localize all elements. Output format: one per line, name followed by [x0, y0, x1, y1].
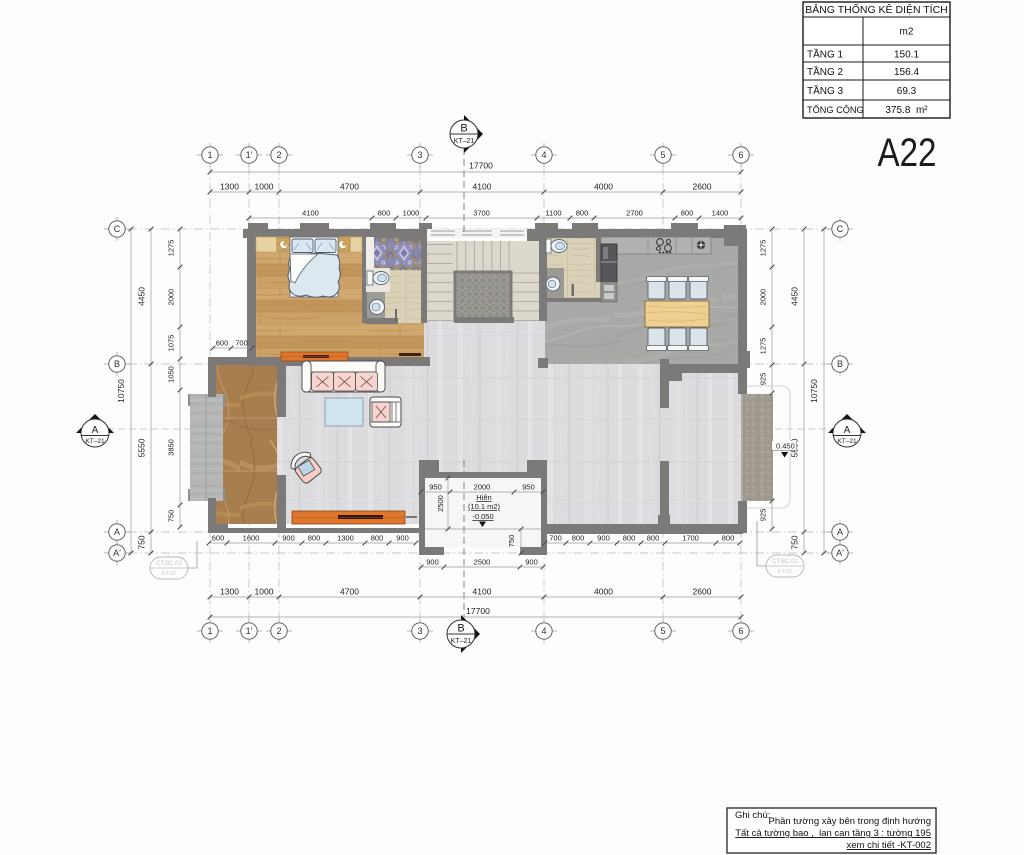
svg-text:1275: 1275: [167, 240, 176, 257]
svg-text:KT:02: KT:02: [778, 569, 792, 575]
svg-text:A: A: [844, 425, 851, 436]
svg-text:800: 800: [681, 209, 694, 218]
svg-text:17700: 17700: [466, 606, 490, 616]
svg-text:Ghi chú:: Ghi chú:: [735, 810, 770, 821]
svg-text:2500: 2500: [474, 558, 491, 567]
svg-text:1075: 1075: [167, 335, 176, 352]
svg-text:2000: 2000: [474, 483, 491, 492]
svg-text:TẦNG 3: TẦNG 3: [807, 84, 844, 97]
svg-text:700: 700: [549, 534, 562, 543]
svg-text:17700: 17700: [469, 161, 493, 171]
svg-text:2000: 2000: [759, 289, 768, 306]
svg-text:1600: 1600: [243, 534, 260, 543]
svg-text:1275: 1275: [759, 338, 768, 355]
svg-text:Hiên: Hiên: [476, 493, 491, 502]
svg-text:800: 800: [378, 209, 391, 218]
svg-text:1275: 1275: [759, 240, 768, 257]
svg-text:4100: 4100: [473, 182, 492, 192]
svg-text:4100: 4100: [302, 209, 319, 218]
svg-text:2000: 2000: [167, 289, 176, 306]
svg-text:1050: 1050: [167, 366, 176, 383]
svg-text:1: 1: [207, 626, 212, 636]
svg-text:1: 1: [207, 150, 212, 160]
svg-text:A: A: [114, 527, 120, 537]
svg-text:xem chi tiết -KT-002: xem chi tiết -KT-002: [847, 840, 931, 851]
svg-text:900: 900: [525, 558, 538, 567]
svg-text:4450: 4450: [790, 287, 800, 306]
svg-text:4700: 4700: [340, 182, 359, 192]
svg-text:600: 600: [212, 534, 225, 543]
svg-text:925: 925: [759, 373, 768, 386]
svg-text:750: 750: [507, 535, 516, 548]
svg-text:900: 900: [282, 534, 295, 543]
svg-text:0.450: 0.450: [776, 442, 795, 451]
svg-text:750: 750: [167, 510, 176, 523]
svg-text:B: B: [460, 123, 467, 135]
svg-text:5: 5: [660, 150, 665, 160]
svg-text:2700: 2700: [626, 209, 643, 218]
svg-text:A: A: [92, 425, 99, 436]
svg-text:10750: 10750: [116, 379, 126, 403]
svg-text:2600: 2600: [693, 182, 712, 192]
svg-text:B: B: [457, 623, 464, 635]
svg-text:2: 2: [276, 150, 281, 160]
svg-text:4: 4: [541, 626, 546, 636]
svg-text:KT:02: KT:02: [162, 571, 176, 577]
svg-text:Phần tường xây bên trong định: Phần tường xây bên trong định hướng: [768, 816, 931, 827]
svg-text:2: 2: [276, 626, 281, 636]
svg-text:KT–21: KT–21: [837, 438, 857, 445]
svg-text:4000: 4000: [594, 587, 613, 597]
svg-text:m2: m2: [900, 27, 914, 38]
svg-text:4100: 4100: [473, 587, 492, 597]
svg-text:900: 900: [396, 534, 409, 543]
svg-text:800: 800: [572, 534, 585, 543]
svg-text:6: 6: [738, 150, 743, 160]
svg-text:A: A: [837, 527, 843, 537]
svg-text:(10.1 m2): (10.1 m2): [468, 502, 501, 511]
svg-text:156.4: 156.4: [894, 67, 919, 78]
svg-text:4000: 4000: [594, 182, 613, 192]
svg-text:KT–21: KT–21: [454, 138, 475, 145]
svg-text:800: 800: [371, 534, 384, 543]
svg-text:2600: 2600: [693, 587, 712, 597]
svg-text:C: C: [837, 224, 844, 234]
svg-text:375.8 m²: 375.8 m²: [885, 105, 928, 116]
svg-text:1400: 1400: [712, 209, 729, 218]
svg-text:5550: 5550: [137, 438, 147, 457]
svg-text:2500: 2500: [436, 495, 445, 512]
svg-text:700: 700: [235, 339, 248, 348]
svg-text:-0.050: -0.050: [472, 512, 493, 521]
svg-text:800: 800: [308, 534, 321, 543]
svg-text:3850: 3850: [167, 439, 176, 456]
svg-text:1300: 1300: [220, 587, 239, 597]
svg-text:4700: 4700: [340, 587, 359, 597]
svg-text:800: 800: [722, 534, 735, 543]
svg-text:4450: 4450: [137, 287, 147, 306]
svg-text:1300: 1300: [220, 182, 239, 192]
svg-text:A': A': [836, 548, 844, 558]
svg-text:C: C: [114, 224, 121, 234]
svg-text:6: 6: [738, 626, 743, 636]
svg-text:925: 925: [759, 509, 768, 522]
svg-text:1000: 1000: [403, 209, 420, 218]
svg-text:1300: 1300: [337, 534, 354, 543]
svg-text:TỔNG CỘNG: TỔNG CỘNG: [807, 104, 864, 115]
svg-text:10750: 10750: [809, 379, 819, 403]
svg-text:3700: 3700: [473, 209, 490, 218]
svg-text:1': 1': [246, 626, 253, 636]
svg-text:A': A': [113, 548, 121, 558]
svg-text:Tất cả tường bao , lan can tầ: Tất cả tường bao , lan can tầng 3 : tườn…: [735, 828, 931, 839]
svg-text:KT–21: KT–21: [85, 438, 105, 445]
svg-text:1000: 1000: [255, 587, 274, 597]
svg-text:750: 750: [137, 535, 147, 549]
svg-text:1700: 1700: [682, 534, 699, 543]
svg-text:150.1: 150.1: [894, 50, 919, 61]
svg-text:CT.BC.01: CT.BC.01: [156, 561, 182, 567]
svg-text:5: 5: [660, 626, 665, 636]
svg-text:1': 1': [246, 150, 253, 160]
svg-text:1100: 1100: [545, 209, 561, 218]
svg-text:600: 600: [216, 339, 229, 348]
svg-text:900: 900: [426, 558, 439, 567]
svg-text:BẢNG THỐNG KÊ DIỆN TÍCH: BẢNG THỐNG KÊ DIỆN TÍCH: [805, 2, 948, 16]
svg-text:950: 950: [429, 483, 442, 492]
svg-text:A22: A22: [878, 131, 937, 175]
svg-text:800: 800: [576, 209, 589, 218]
svg-text:CT.BC.01: CT.BC.01: [772, 559, 798, 565]
svg-text:800: 800: [623, 534, 636, 543]
svg-text:69.3: 69.3: [897, 86, 917, 97]
svg-text:3: 3: [417, 626, 422, 636]
svg-text:B: B: [837, 359, 843, 369]
svg-text:TẦNG 1: TẦNG 1: [807, 48, 844, 61]
svg-text:750: 750: [790, 535, 800, 549]
svg-text:3: 3: [417, 150, 422, 160]
svg-text:900: 900: [597, 534, 610, 543]
svg-text:800: 800: [647, 534, 660, 543]
svg-text:KT–21: KT–21: [451, 638, 472, 645]
svg-text:B: B: [114, 359, 120, 369]
svg-text:1000: 1000: [255, 182, 274, 192]
svg-text:950: 950: [522, 483, 535, 492]
svg-text:TẦNG 2: TẦNG 2: [807, 65, 844, 78]
svg-text:4: 4: [541, 150, 546, 160]
